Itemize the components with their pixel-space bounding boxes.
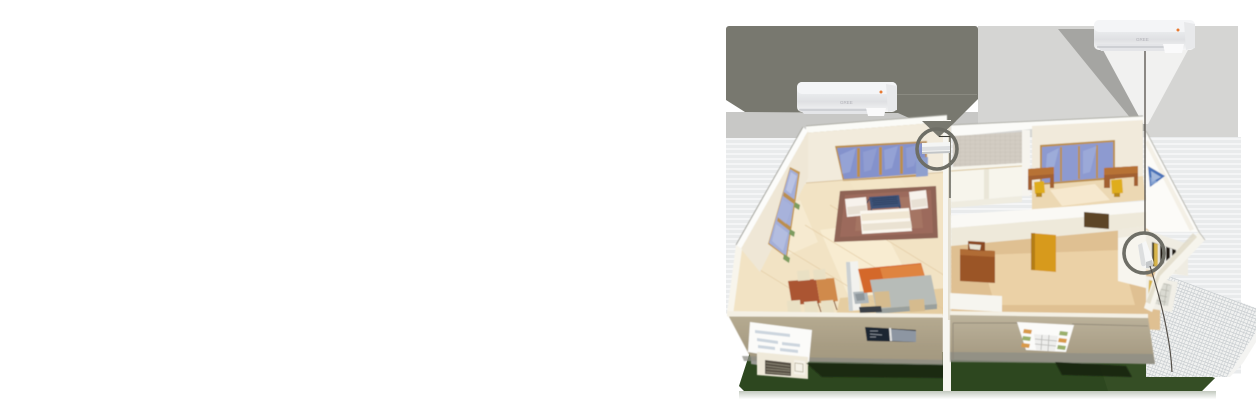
- svg-text:GREE: GREE: [840, 100, 853, 105]
- svg-text:GREE: GREE: [1136, 37, 1149, 42]
